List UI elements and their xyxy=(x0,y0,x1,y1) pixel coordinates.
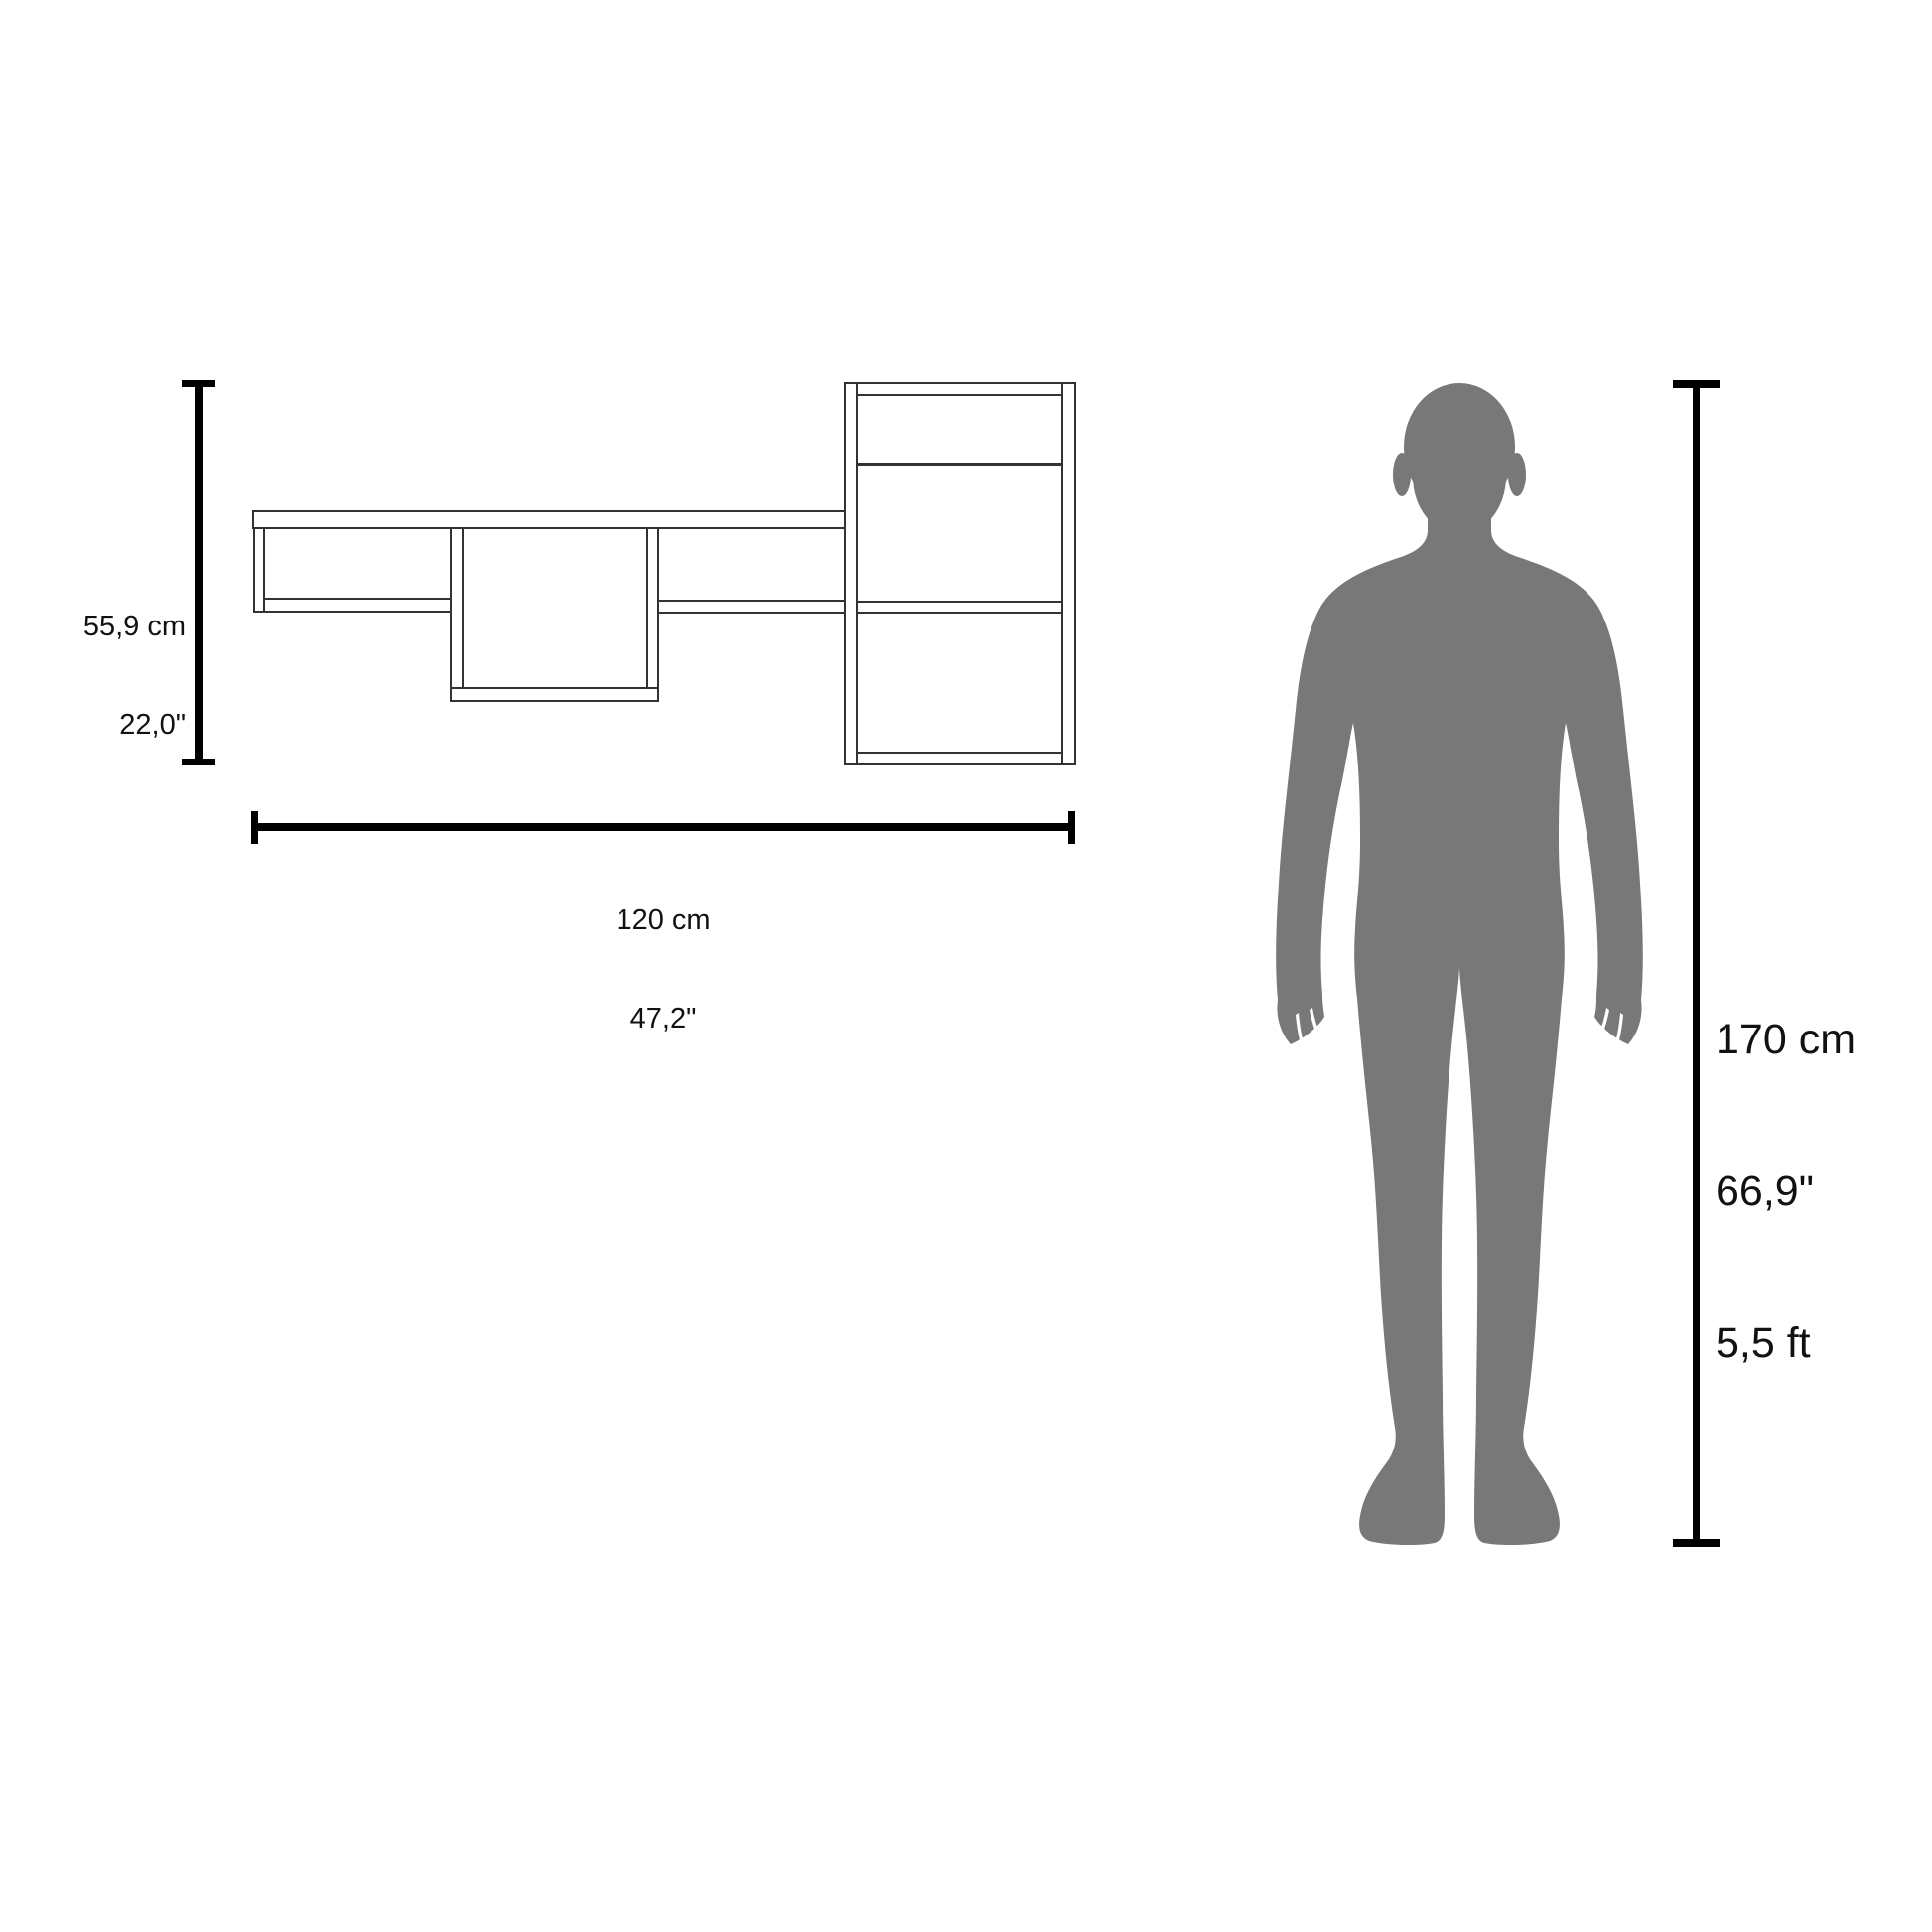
shelf-diagram xyxy=(252,382,1076,765)
middle-box-right-wall xyxy=(647,528,658,701)
person-height-dimension-line xyxy=(1693,380,1700,1547)
height-dimension-line xyxy=(195,380,203,765)
shelf-left-panel xyxy=(254,528,264,612)
width-dimension-line xyxy=(251,823,1075,831)
tall-box-upper-shelf xyxy=(857,463,1062,466)
tall-box-top xyxy=(857,383,1062,395)
width-label-cm: 120 cm xyxy=(465,904,862,937)
dimension-diagram: 55,9 cm 22,0" 120 cm 47,2" 170 cm 66,9" … xyxy=(0,0,1932,1932)
width-label: 120 cm 47,2" xyxy=(465,839,862,1101)
person-silhouette-icon xyxy=(1269,383,1650,1545)
width-label-inch: 47,2" xyxy=(465,1003,862,1035)
width-dimension-cap-left xyxy=(251,811,258,844)
height-label: 55,9 cm 22,0" xyxy=(0,545,186,807)
height-label-cm: 55,9 cm xyxy=(0,611,186,643)
height-dimension-cap-bottom xyxy=(182,759,215,765)
height-label-inch: 22,0" xyxy=(0,709,186,742)
tall-box-right-wall xyxy=(1062,383,1075,764)
shelf-right-bottom xyxy=(658,601,845,613)
silhouette-ear-left xyxy=(1393,453,1411,496)
shelf-left-bottom xyxy=(264,599,451,612)
silhouette-body xyxy=(1276,498,1643,1545)
silhouette-ear-right xyxy=(1508,453,1526,496)
person-height-label-cm: 170 cm xyxy=(1716,1015,1856,1065)
middle-box-bottom xyxy=(451,688,658,701)
person-height-label: 170 cm 66,9" 5,5 ft xyxy=(1716,913,1856,1470)
width-dimension-cap-right xyxy=(1068,811,1075,844)
person-height-cap-top xyxy=(1673,380,1720,388)
height-dimension-cap-top xyxy=(182,380,215,387)
middle-box-left-wall xyxy=(451,528,463,701)
shelf-top-board xyxy=(253,511,845,528)
person-height-cap-bottom xyxy=(1673,1539,1720,1547)
tall-box-middle-shelf xyxy=(857,602,1062,613)
tall-box-left-wall xyxy=(845,383,857,764)
tall-box-bottom xyxy=(857,753,1062,764)
person-height-label-inch: 66,9" xyxy=(1716,1167,1856,1217)
person-height-label-ft: 5,5 ft xyxy=(1716,1318,1856,1369)
